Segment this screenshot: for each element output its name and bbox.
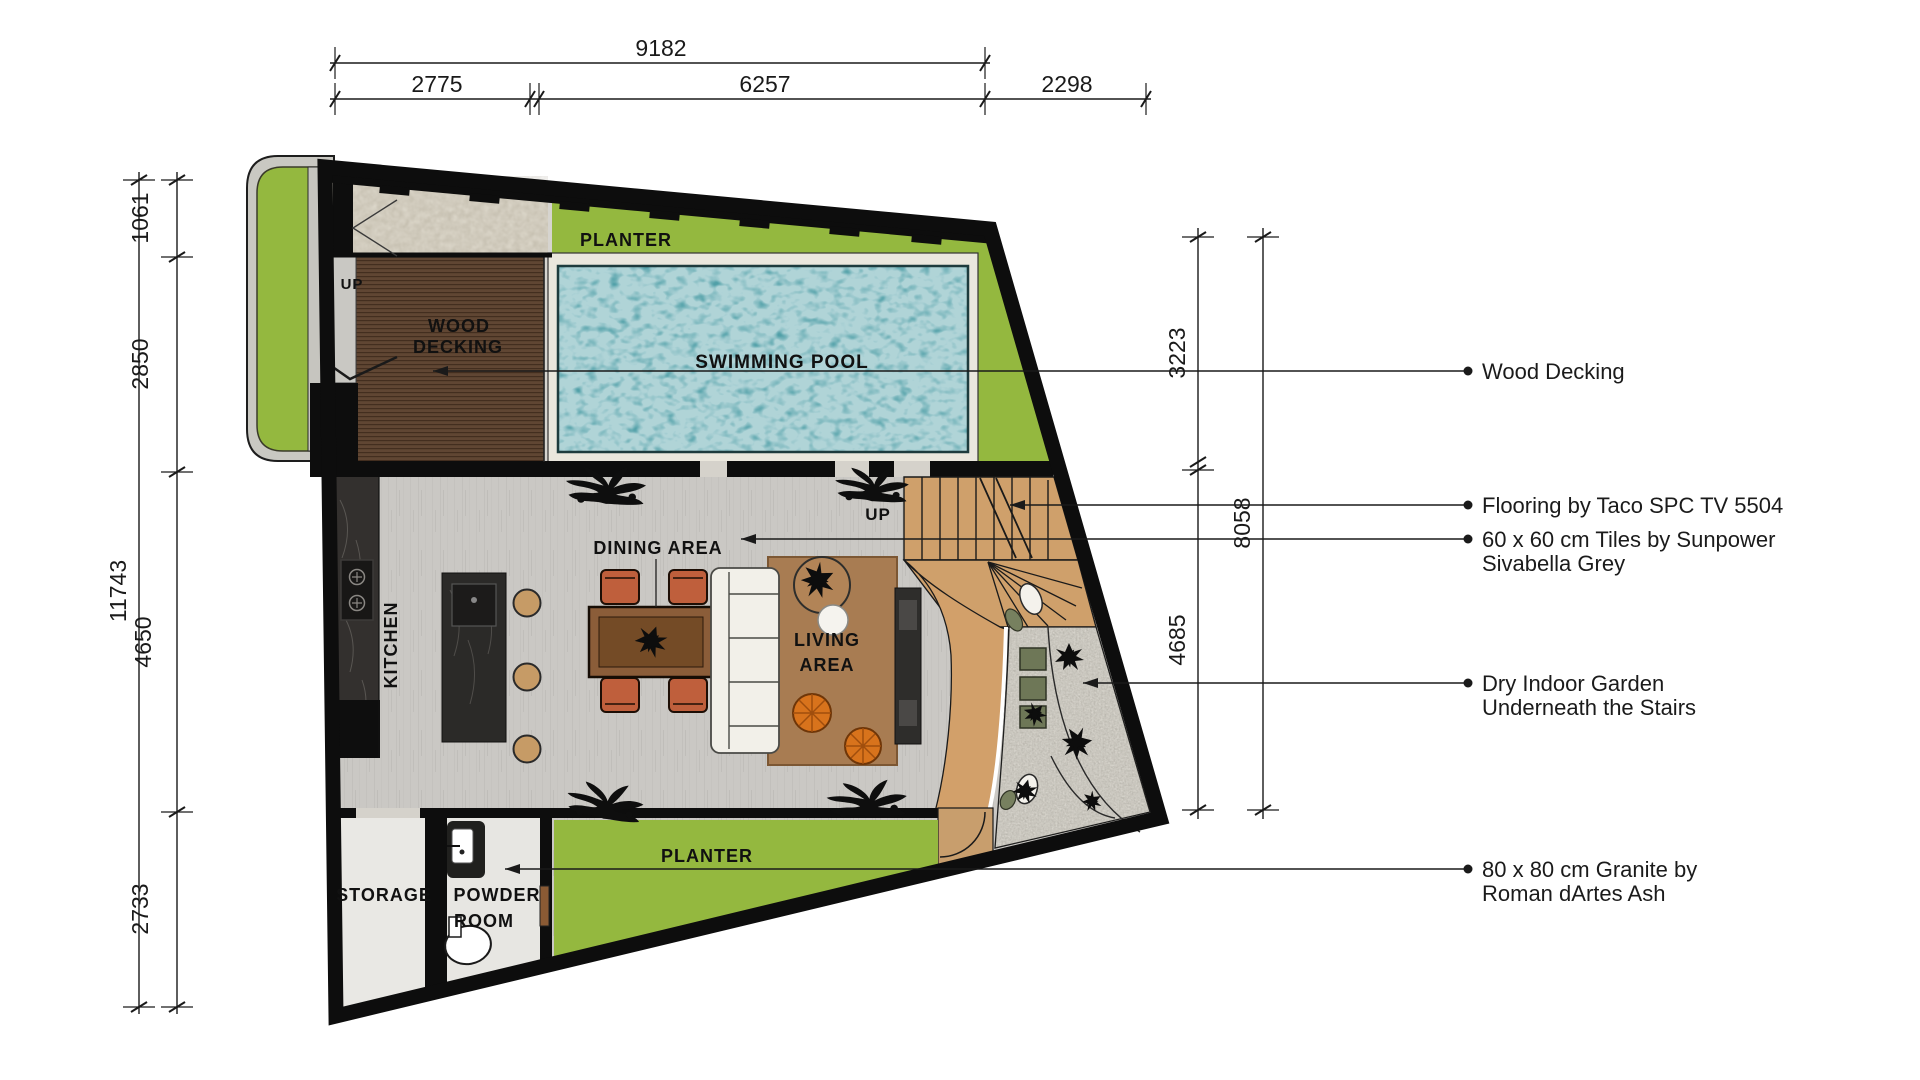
svg-text:POWDER: POWDER — [454, 885, 541, 905]
svg-text:LIVING: LIVING — [794, 630, 860, 650]
svg-text:1061: 1061 — [127, 192, 153, 243]
svg-text:Wood Decking: Wood Decking — [1482, 359, 1625, 384]
svg-text:2850: 2850 — [127, 338, 153, 389]
svg-text:4685: 4685 — [1164, 614, 1190, 665]
svg-text:SWIMMING POOL: SWIMMING POOL — [695, 352, 868, 373]
svg-text:AREA: AREA — [799, 655, 854, 675]
svg-text:6257: 6257 — [739, 71, 790, 97]
svg-text:STORAGE: STORAGE — [336, 885, 432, 905]
svg-text:4650: 4650 — [130, 616, 156, 667]
svg-text:ROOM: ROOM — [454, 911, 514, 931]
svg-text:9182: 9182 — [635, 35, 686, 61]
svg-text:80 x 80 cm Granite by: 80 x 80 cm Granite by — [1482, 857, 1697, 882]
svg-text:Sivabella Grey: Sivabella Grey — [1482, 551, 1625, 576]
svg-text:Underneath the Stairs: Underneath the Stairs — [1482, 695, 1696, 720]
svg-text:Flooring by Taco SPC TV 5504: Flooring by Taco SPC TV 5504 — [1482, 493, 1783, 518]
svg-text:2775: 2775 — [411, 71, 462, 97]
svg-text:Roman dArtes Ash: Roman dArtes Ash — [1482, 881, 1665, 906]
svg-text:2733: 2733 — [127, 883, 153, 934]
svg-text:PLANTER: PLANTER — [661, 846, 753, 866]
svg-text:Dry Indoor Garden: Dry Indoor Garden — [1482, 671, 1664, 696]
svg-text:11743: 11743 — [105, 560, 131, 622]
svg-text:DINING AREA: DINING AREA — [593, 538, 722, 558]
svg-text:DECKING: DECKING — [413, 337, 503, 357]
svg-text:60 x 60 cm Tiles by Sunpower: 60 x 60 cm Tiles by Sunpower — [1482, 527, 1775, 552]
svg-text:UP: UP — [865, 505, 891, 524]
svg-text:KITCHEN: KITCHEN — [381, 602, 401, 689]
svg-text:PLANTER: PLANTER — [580, 230, 672, 250]
svg-text:UP: UP — [341, 276, 364, 293]
svg-text:2298: 2298 — [1041, 71, 1092, 97]
svg-text:WOOD: WOOD — [428, 316, 490, 336]
